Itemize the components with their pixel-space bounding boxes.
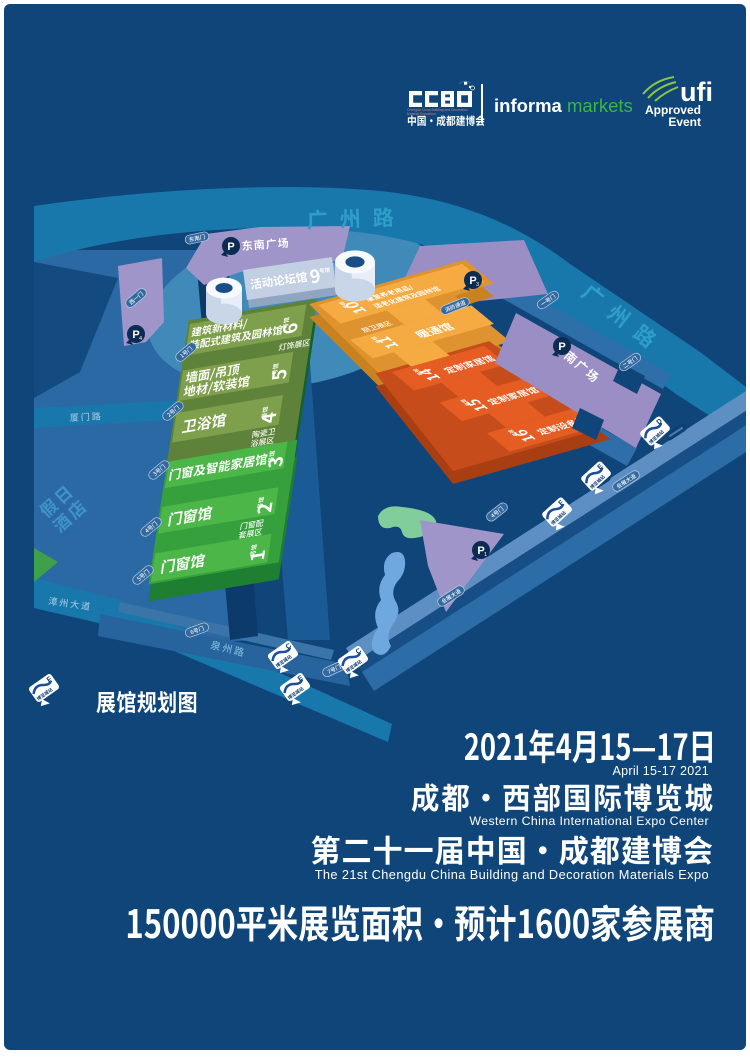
svg-text:3: 3 <box>476 282 479 288</box>
svg-text:ufi: ufi <box>680 77 713 106</box>
svg-text:P: P <box>227 241 234 253</box>
svg-text:4: 4 <box>139 336 142 342</box>
svg-text:1: 1 <box>484 552 487 558</box>
svg-text:P: P <box>558 341 565 353</box>
